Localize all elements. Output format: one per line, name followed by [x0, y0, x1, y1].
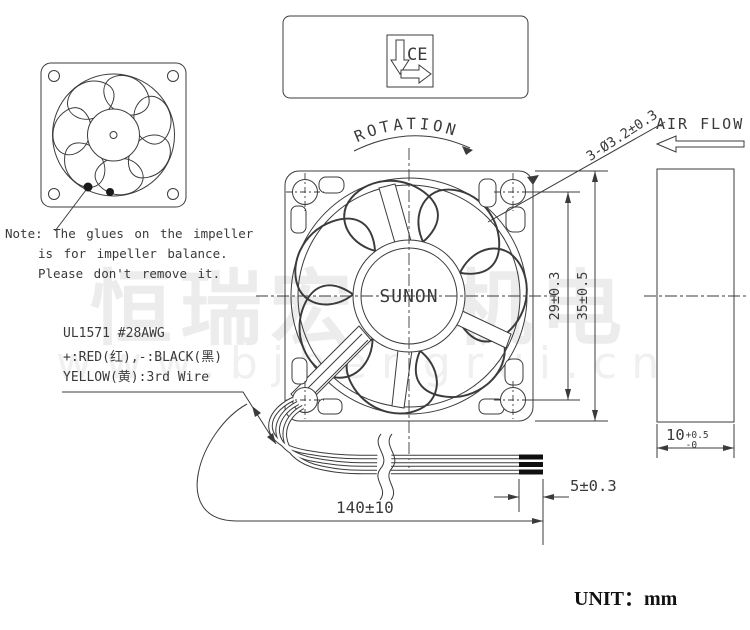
- leader-arrowhead: [252, 406, 261, 417]
- wire-spec-line-2: +:RED(红),-:BLACK(黑): [63, 346, 222, 365]
- side-view: [644, 136, 748, 422]
- thickness-tolerance: +0.5-0: [686, 431, 709, 451]
- hole-crosshair: [494, 173, 532, 211]
- dim-frame-size-label: 35±0.5: [575, 265, 591, 327]
- side-frame: [657, 169, 734, 422]
- note-leader-line: [55, 190, 86, 231]
- dim-strip-lines: [494, 479, 569, 545]
- dim-thickness-label: 10+0.5-0: [666, 426, 709, 451]
- corner-cutout: [318, 399, 342, 414]
- glue-dot: [106, 188, 114, 196]
- dim-arrowhead: [565, 389, 571, 400]
- dim-arrowhead: [565, 192, 571, 203]
- airflow-arrow-icon: [657, 136, 744, 152]
- dim-strip-length-label: 5±0.3: [570, 477, 617, 495]
- corner-cutout: [319, 177, 344, 193]
- rear-view-fan: SUNON: [256, 148, 556, 468]
- dim-hole-pitch-label: 29±0.3: [547, 265, 563, 327]
- note-line-2: is for impeller balance.: [38, 246, 228, 261]
- label-box: CE: [283, 16, 528, 98]
- wire-stripped-tip: [519, 455, 543, 460]
- front-hub: [88, 109, 140, 161]
- airflow-label: AIR FLOW: [656, 115, 744, 133]
- note-line-3: Please don't remove it.: [38, 266, 220, 281]
- corner-cutout: [292, 358, 307, 384]
- wire-spec-leader: [62, 392, 276, 444]
- dim-arrowhead: [543, 494, 554, 500]
- corner-cutout: [291, 206, 306, 233]
- corner-cutout: [505, 359, 523, 385]
- dim-arrowhead: [723, 445, 734, 451]
- rotation-indicator: ROTATION: [352, 115, 473, 155]
- dim-arrowhead: [508, 494, 519, 500]
- front-hole: [168, 71, 179, 82]
- hole-crosshair: [286, 173, 324, 211]
- glue-dot: [84, 183, 93, 192]
- wire-stripped-tip: [519, 462, 543, 467]
- dim-arrowhead: [592, 171, 598, 182]
- label-outline: [283, 16, 528, 98]
- wire-stripped-tip: [519, 470, 543, 475]
- break-mask: [376, 437, 392, 500]
- dim-arrowhead: [532, 518, 543, 524]
- unit-label: UNIT：mm: [574, 582, 677, 611]
- rotation-label: ROTATION: [352, 115, 461, 146]
- thickness-lower-tol: -0: [686, 441, 709, 451]
- thickness-value: 10: [666, 426, 685, 444]
- corner-cutout: [479, 179, 496, 207]
- right-arrow-icon: [401, 65, 431, 83]
- wire-spec-line-1: UL1571 #28AWG: [63, 326, 165, 341]
- wire-spec-line-3: YELLOW(黄):3rd Wire: [63, 366, 209, 385]
- front-hole: [49, 71, 60, 82]
- front-hole: [168, 189, 179, 200]
- technical-drawing-canvas: 恒瑞宏晟机电 www.bjhengrui.cn: [0, 0, 750, 630]
- leader-arrowhead: [527, 175, 539, 185]
- dim-arrowhead: [592, 410, 598, 421]
- note-line-1: Note: The glues on the impeller: [5, 226, 253, 241]
- hole-diameter-leader: [488, 122, 665, 222]
- ce-mark-icon: CE: [407, 45, 427, 65]
- front-view-fan: [41, 63, 186, 231]
- dim-lead-length-label: 140±10: [336, 498, 394, 517]
- strut: [379, 184, 411, 243]
- fan-drawing-svg: CE ROTATION: [0, 0, 750, 630]
- front-hole: [49, 189, 60, 200]
